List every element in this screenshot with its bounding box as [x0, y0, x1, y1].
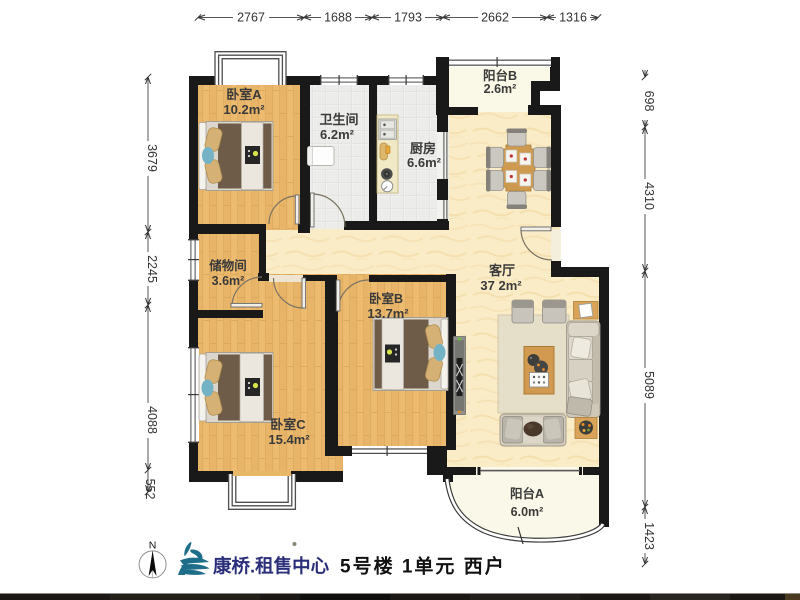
svg-text:2662: 2662: [481, 11, 509, 25]
svg-text:5089: 5089: [642, 371, 656, 399]
svg-text:10.2m²: 10.2m²: [223, 102, 265, 117]
svg-text:客厅: 客厅: [489, 263, 515, 278]
svg-text:1423: 1423: [642, 522, 656, 550]
svg-text:3.6m²: 3.6m²: [212, 274, 245, 288]
svg-text:3679: 3679: [145, 144, 159, 172]
svg-text:15.4m²: 15.4m²: [268, 432, 310, 447]
svg-text:5号楼 1单元 西户: 5号楼 1单元 西户: [340, 555, 506, 578]
svg-text:13.7m²: 13.7m²: [367, 306, 409, 321]
svg-text:2245: 2245: [145, 255, 159, 283]
svg-text:4088: 4088: [145, 406, 159, 434]
svg-text:阳台A: 阳台A: [510, 486, 544, 501]
svg-text:阳台B: 阳台B: [483, 68, 517, 83]
svg-text:2767: 2767: [237, 11, 265, 25]
svg-text:N: N: [149, 540, 157, 552]
svg-text:2.6m²: 2.6m²: [484, 82, 517, 96]
svg-text:厨房: 厨房: [410, 141, 436, 156]
svg-text:37 2m²: 37 2m²: [480, 278, 522, 293]
svg-text:698: 698: [642, 91, 656, 112]
svg-text:1688: 1688: [324, 11, 352, 25]
svg-text:卧室C: 卧室C: [270, 417, 306, 432]
svg-text:552: 552: [143, 479, 157, 500]
svg-text:卧室A: 卧室A: [226, 87, 262, 102]
svg-text:卫生间: 卫生间: [319, 112, 358, 127]
svg-text:6.2m²: 6.2m²: [320, 127, 355, 142]
svg-text:康桥.租售中心: 康桥.租售中心: [213, 556, 330, 577]
svg-text:6.6m²: 6.6m²: [407, 155, 442, 170]
svg-text:6.0m²: 6.0m²: [511, 505, 544, 519]
svg-text:1793: 1793: [394, 11, 422, 25]
svg-text:1316: 1316: [559, 11, 587, 25]
svg-text:4310: 4310: [642, 182, 656, 210]
svg-text:卧室B: 卧室B: [369, 291, 403, 306]
svg-text:储物间: 储物间: [208, 258, 247, 273]
